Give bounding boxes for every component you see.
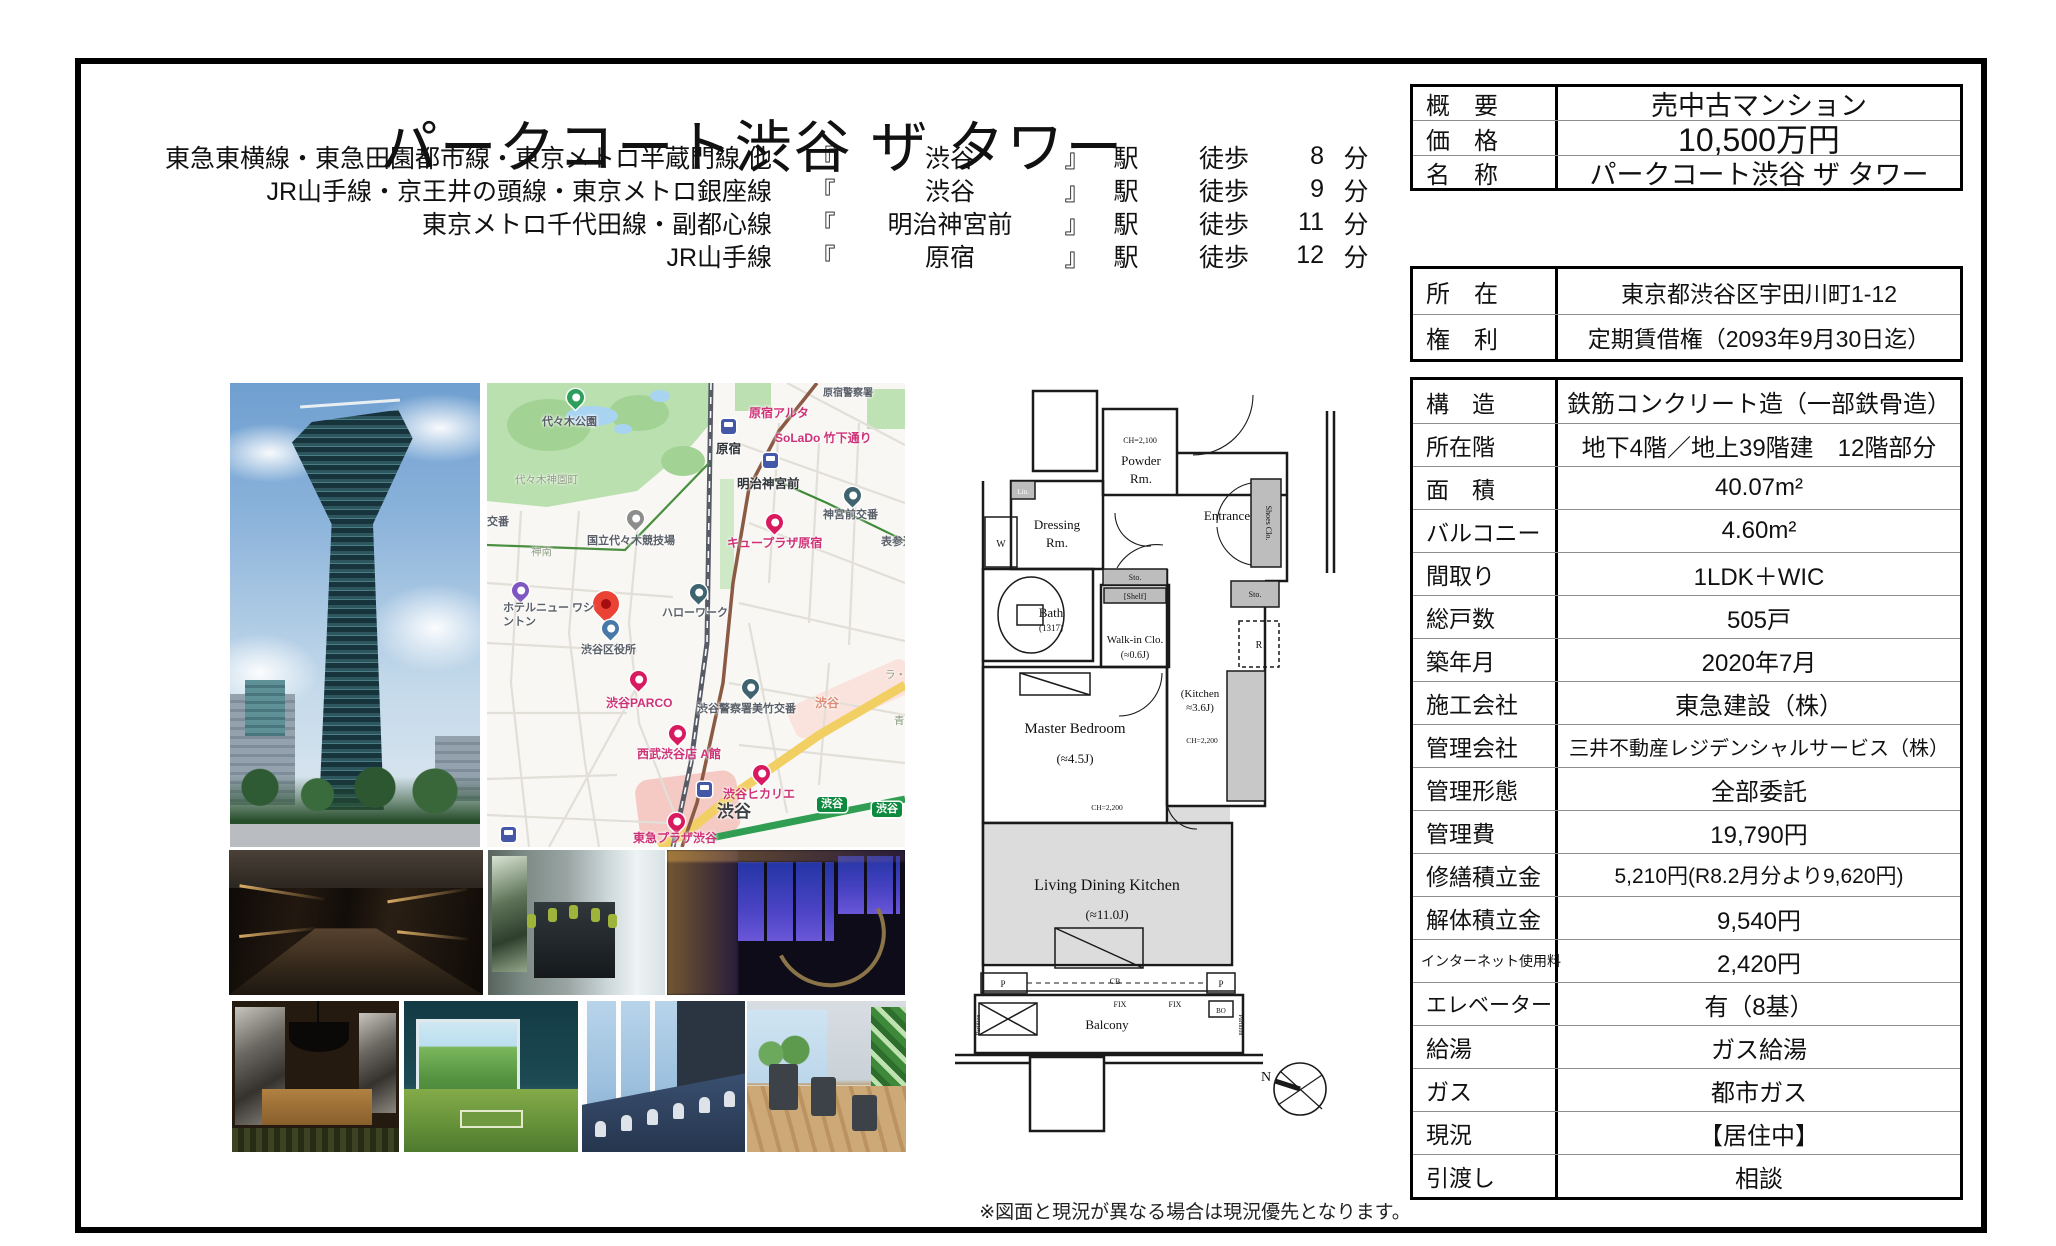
photo-private-dining <box>232 1001 399 1152</box>
row-value: 有（8基） <box>1558 983 1960 1025</box>
row-label: 名 称 <box>1413 156 1558 188</box>
svg-text:(≈0.6J): (≈0.6J) <box>1121 650 1150 661</box>
fp-partition2: Partition <box>1237 1015 1243 1036</box>
row-value: 定期賃借権（2093年9月30日迄） <box>1558 315 1960 359</box>
table-row: 概 要 売中古マンション <box>1413 87 1960 120</box>
row-value: 鉄筋コンクリート造（一部鉄骨造） <box>1558 380 1960 423</box>
treadmill <box>811 1077 836 1116</box>
row-value: 4.60m² <box>1558 510 1960 552</box>
row-label: 面 積 <box>1413 467 1558 509</box>
row-value: 9,540円 <box>1558 897 1960 939</box>
exercise-bike <box>852 1095 877 1131</box>
fp-ch1: CH=2,200 <box>1186 736 1218 745</box>
map-label-yoyogi-park: 代々木公園 <box>542 413 597 429</box>
light-strip <box>387 887 468 903</box>
fp-entrance: Entrance <box>1204 508 1250 523</box>
photo-view-lounge <box>582 1001 745 1152</box>
row-label: 築年月 <box>1413 639 1558 681</box>
fp-north: N <box>1261 1070 1271 1085</box>
flyer-page: パークコート渋谷 ザ タワー 東急東横線・東急田園都市線・東京メトロ半蔵門線 他… <box>0 0 2056 1246</box>
station-icon <box>697 782 712 797</box>
walk-label: 徒歩 <box>1192 172 1256 208</box>
floor-plan: CH=2,100 Powder Rm. Entrance Shoes Clo. … <box>955 383 1349 1195</box>
access-station: 明治神宮前 <box>840 205 1060 241</box>
station-icon <box>501 827 516 842</box>
row-value: 東急建設（株） <box>1558 682 1960 724</box>
row-value: 5,210円(R8.2月分より9,620円) <box>1558 854 1960 896</box>
map-label-jinnan: 神南 <box>531 544 552 559</box>
access-row: 東急東横線・東急田園都市線・東京メトロ半蔵門線 他 『 渋谷 』 駅 徒歩 8 … <box>160 140 1370 173</box>
background-building <box>245 680 285 736</box>
location-table: 所 在 東京都渋谷区宇田川町1-12 権 利 定期賃借権（2093年9月30日迄… <box>1410 266 1963 362</box>
bracket-close: 』 <box>1060 139 1094 175</box>
access-station: 渋谷 <box>840 172 1060 208</box>
station-suffix: 駅 <box>1106 205 1146 241</box>
map-label-harajuku-station: 原宿 <box>716 438 741 457</box>
bracket-open: 『 <box>806 205 840 241</box>
access-route: JR山手線 <box>160 238 772 274</box>
fp-master-bedroom: Master Bedroom <box>1024 721 1126 737</box>
bracket-open: 『 <box>806 172 840 208</box>
minute-unit: 分 <box>1338 205 1374 241</box>
row-label: 給湯 <box>1413 1026 1558 1068</box>
row-value: 東京都渋谷区宇田川町1-12 <box>1558 269 1960 314</box>
row-value: 1LDK＋WIC <box>1558 553 1960 595</box>
row-label: 総戸数 <box>1413 596 1558 638</box>
row-value: 【居住中】 <box>1558 1112 1960 1154</box>
row-value: 19,790円 <box>1558 811 1960 853</box>
row-value: ガス給湯 <box>1558 1026 1960 1068</box>
walk-minutes: 8 <box>1272 142 1324 171</box>
location-map: 代々木公園 原宿警察署 原宿アルタ SoLaDo 竹下通り 原宿 明治神宮前 神… <box>487 383 905 847</box>
fp-shelf: [Shelf] <box>1124 592 1147 601</box>
row-label: 構 造 <box>1413 380 1558 423</box>
wall-art <box>492 856 527 972</box>
row-value: 地下4階／地上39階建 12階部分 <box>1558 424 1960 466</box>
row-value: 相談 <box>1558 1155 1960 1197</box>
fp-fix2: FIX <box>1169 1000 1182 1009</box>
walk-label: 徒歩 <box>1192 139 1256 175</box>
map-label-yoyogi-kamizonocho: 代々木神園町 <box>515 472 578 487</box>
floor-plan-drawing: CH=2,100 Powder Rm. Entrance Shoes Clo. … <box>955 383 1349 1195</box>
map-label-solado: SoLaDo 竹下通り <box>775 429 872 446</box>
map-label-omotesando: 表参道 <box>881 533 905 549</box>
hitting-mat <box>460 1110 523 1128</box>
fp-p1: P <box>1000 979 1005 989</box>
map-label-hellowork: ハローワーク <box>662 604 728 620</box>
station-suffix: 駅 <box>1106 172 1146 208</box>
ambient-glow <box>667 850 738 995</box>
fp-bo: BO <box>1216 1007 1226 1015</box>
street <box>230 824 480 847</box>
access-station: 原宿 <box>840 238 1060 274</box>
row-label: 価 格 <box>1413 121 1558 155</box>
row-value: 505戸 <box>1558 596 1960 638</box>
row-value: 2020年7月 <box>1558 639 1960 681</box>
table-row: 名 称 パークコート渋谷 ザ タワー <box>1413 155 1960 188</box>
svg-text:(≈11.0J): (≈11.0J) <box>1085 907 1128 922</box>
table-row: 価 格 10,500万円 <box>1413 120 1960 155</box>
fp-shoes: Shoes Clo. <box>1264 506 1273 541</box>
station-icon <box>763 453 778 468</box>
access-row: JR山手線・京王井の頭線・東京メトロ銀座線 『 渋谷 』 駅 徒歩 9 分 <box>160 173 1370 206</box>
photo-golf-simulator <box>404 1001 578 1152</box>
bracket-close: 』 <box>1060 238 1094 274</box>
map-label-mitake-koban: 渋谷警察署美竹交番 <box>697 700 796 716</box>
details-table: 構 造鉄筋コンクリート造（一部鉄骨造） 所在階地下4階／地上39階建 12階部分… <box>1410 377 1963 1200</box>
row-label: 管理会社 <box>1413 725 1558 767</box>
fp-lin: Lin. <box>1017 488 1029 496</box>
walk-minutes: 11 <box>1272 208 1324 237</box>
treadmill <box>769 1064 798 1109</box>
floor <box>232 1128 399 1152</box>
access-route: 東京メトロ千代田線・副都心線 <box>160 205 772 241</box>
minute-unit: 分 <box>1338 172 1374 208</box>
walk-label: 徒歩 <box>1192 238 1256 274</box>
fp-partition1: Partition <box>976 1015 982 1036</box>
fp-sto: Sto. <box>1129 573 1142 582</box>
fp-sto2: Sto. <box>1249 590 1262 599</box>
light-strip <box>239 927 315 938</box>
pendant-lamp <box>289 1022 349 1052</box>
access-row: JR山手線 『 原宿 』 駅 徒歩 12 分 <box>160 239 1370 272</box>
row-label: エレベーター <box>1413 983 1558 1025</box>
map-label-cute-plaza: キュープラザ原宿 <box>727 534 822 551</box>
light-strip <box>397 930 468 940</box>
ambient-glow <box>667 850 905 862</box>
access-route: JR山手線・京王井の頭線・東京メトロ銀座線 <box>160 172 772 208</box>
map-label-shibuya-area: 渋谷 <box>815 694 839 711</box>
access-row: 東京メトロ千代田線・副都心線 『 明治神宮前 』 駅 徒歩 11 分 <box>160 206 1370 239</box>
fp-ldk: Living Dining Kitchen <box>1034 877 1180 894</box>
compass-icon <box>1274 1063 1326 1115</box>
map-label-ao: 青 <box>894 713 905 728</box>
row-value: 2,420円 <box>1558 940 1960 982</box>
cloud <box>370 583 480 673</box>
walk-label: 徒歩 <box>1192 205 1256 241</box>
photo-meeting-room <box>488 850 665 995</box>
fp-cb: CB <box>1110 977 1121 986</box>
bracket-close: 』 <box>1060 172 1094 208</box>
row-label: バルコニー <box>1413 510 1558 552</box>
row-value: 全部委託 <box>1558 768 1960 810</box>
dining-table <box>262 1089 372 1125</box>
fp-balcony: Balcony <box>1085 1017 1129 1032</box>
summary-table: 概 要 売中古マンション 価 格 10,500万円 名 称 パークコート渋谷 ザ… <box>1410 84 1963 191</box>
lamp-wire <box>317 1001 319 1024</box>
fp-fix1: FIX <box>1114 1000 1127 1009</box>
row-label: 管理形態 <box>1413 768 1558 810</box>
row-label: ガス <box>1413 1069 1558 1111</box>
walk-minutes: 9 <box>1272 175 1324 204</box>
table-row: 所 在 東京都渋谷区宇田川町1-12 <box>1413 269 1960 314</box>
map-label-hotel-washington: ホテルニュー ワシントン <box>503 602 601 630</box>
station-suffix: 駅 <box>1106 139 1146 175</box>
map-label-seibu: 西武渋谷店 A館 <box>637 745 721 762</box>
road-badge-shibuya: 渋谷 <box>817 797 847 812</box>
access-route: 東急東横線・東急田園都市線・東京メトロ半蔵門線 他 <box>160 139 772 175</box>
row-label: 所 在 <box>1413 269 1558 314</box>
row-label: 現況 <box>1413 1112 1558 1154</box>
row-label: インターネット使用料 <box>1413 940 1558 982</box>
bracket-open: 『 <box>806 139 840 175</box>
map-label-yoyogi-stadium: 国立代々木競技場 <box>587 532 675 548</box>
row-label: 権 利 <box>1413 315 1558 359</box>
fp-kitchen: (Kitchen <box>1181 688 1220 700</box>
map-label-meijijingumae-station: 明治神宮前 <box>737 473 800 492</box>
map-label-koban: 交番 <box>487 513 509 529</box>
bracket-close: 』 <box>1060 205 1094 241</box>
map-label-shibuya-station: 渋谷 <box>717 797 751 822</box>
row-label: 所在階 <box>1413 424 1558 466</box>
svg-text:Rm.: Rm. <box>1046 535 1068 550</box>
fp-p2: P <box>1218 979 1223 989</box>
map-label-la: ラ・ <box>885 667 905 682</box>
row-value: 三井不動産レジデンシャルサービス（株） <box>1558 725 1960 767</box>
row-value: 40.07m² <box>1558 467 1960 509</box>
walk-minutes: 12 <box>1272 241 1324 270</box>
row-label: 施工会社 <box>1413 682 1558 724</box>
trees <box>230 754 480 828</box>
row-value: 売中古マンション <box>1558 87 1960 120</box>
fp-powder: Powder <box>1121 453 1161 468</box>
access-station: 渋谷 <box>840 139 1060 175</box>
photo-fitness-gym <box>747 1001 906 1152</box>
svg-text:≈3.6J): ≈3.6J) <box>1186 702 1214 714</box>
fp-dressing: Dressing <box>1034 517 1081 532</box>
footnote: ※図面と現況が異なる場合は現況優先となります。 <box>975 1197 1415 1224</box>
price-value: 10,500万円 <box>1558 121 1960 155</box>
station-suffix: 駅 <box>1106 238 1146 274</box>
photo-building-exterior <box>230 383 480 847</box>
svg-text:(1317): (1317) <box>1039 623 1063 633</box>
row-label: 管理費 <box>1413 811 1558 853</box>
row-value: パークコート渋谷 ザ タワー <box>1558 156 1960 188</box>
station-icon <box>721 419 736 434</box>
row-label: 概 要 <box>1413 87 1558 120</box>
fp-ch2: CH=2,200 <box>1091 803 1123 812</box>
map-label-harajuku-police: 原宿警察署 <box>823 384 873 399</box>
map-label-harajuku-alta: 原宿アルタ <box>749 404 809 421</box>
fp-washer: W <box>996 539 1006 550</box>
fp-bath: Bath <box>1039 605 1064 620</box>
row-label: 引渡し <box>1413 1155 1558 1197</box>
road-badge-shibuya: 渋谷 <box>872 802 902 817</box>
svg-text:(≈4.5J): (≈4.5J) <box>1056 751 1093 766</box>
bracket-open: 『 <box>806 238 840 274</box>
svg-text:Rm.: Rm. <box>1130 471 1152 486</box>
map-label-jingumae-koban: 神宮前交番 <box>823 506 878 522</box>
row-value: 都市ガス <box>1558 1069 1960 1111</box>
photo-sky-lounge <box>667 850 905 995</box>
photo-entrance-corridor <box>229 850 483 995</box>
map-label-shibuya-cityhall: 渋谷区役所 <box>581 641 636 657</box>
map-label-tokyu-plaza: 東急プラザ渋谷 <box>633 829 717 846</box>
map-label-shibuya-parco: 渋谷PARCO <box>606 694 672 711</box>
row-label: 修繕積立金 <box>1413 854 1558 896</box>
fp-fridge: R <box>1256 640 1263 651</box>
corridor-ceiling <box>229 850 483 888</box>
minute-unit: 分 <box>1338 139 1374 175</box>
fp-ch-powder: CH=2,100 <box>1123 436 1157 445</box>
table-row: 権 利 定期賃借権（2093年9月30日迄） <box>1413 314 1960 359</box>
fp-walkin: Walk-in Clo. <box>1107 634 1164 646</box>
access-list: 東急東横線・東急田園都市線・東京メトロ半蔵門線 他 『 渋谷 』 駅 徒歩 8 … <box>160 140 1370 272</box>
row-label: 間取り <box>1413 553 1558 595</box>
row-label: 解体積立金 <box>1413 897 1558 939</box>
minute-unit: 分 <box>1338 238 1374 274</box>
